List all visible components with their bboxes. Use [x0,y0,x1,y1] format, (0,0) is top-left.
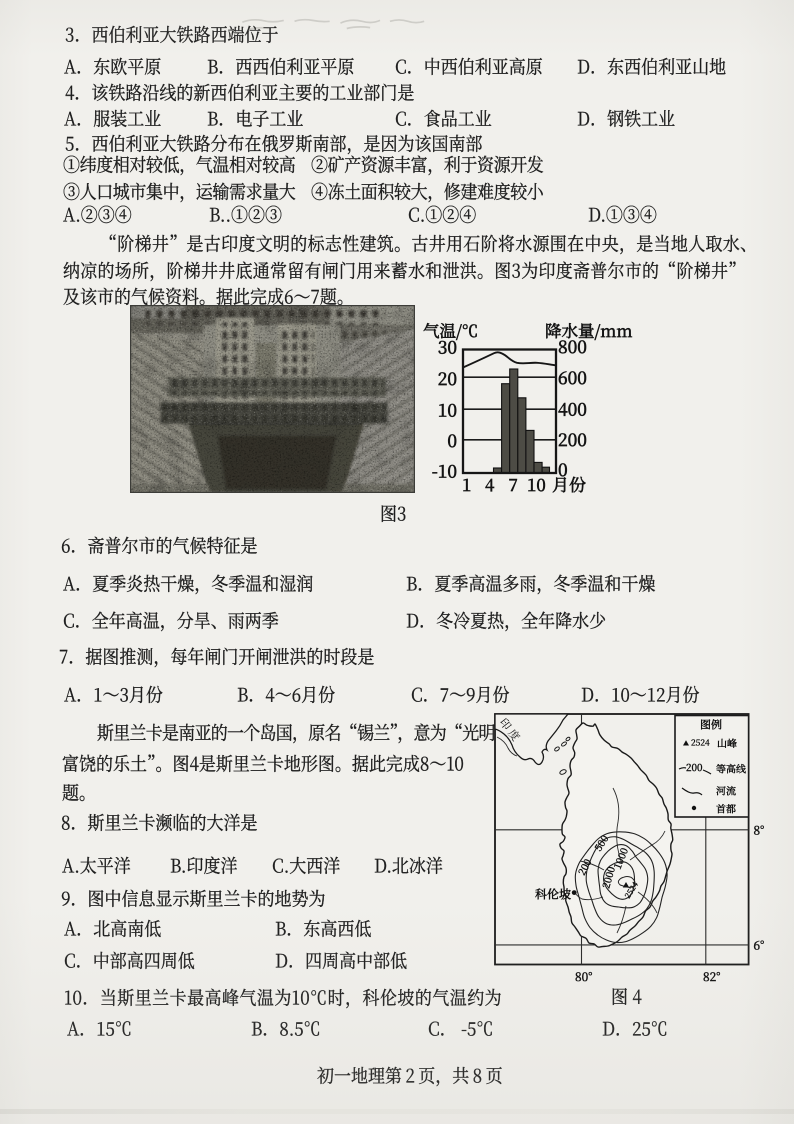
svg-text:10: 10 [527,471,546,496]
svg-text:82°: 82° [703,968,720,985]
svg-text:20: 20 [438,366,458,391]
svg-text:图例: 图例 [700,717,722,733]
svg-text:等高线: 等高线 [716,761,747,776]
svg-text:8°: 8° [754,822,765,839]
svg-text:-10: -10 [432,459,458,484]
svg-text:河流: 河流 [716,783,736,798]
svg-text:600: 600 [558,365,587,390]
svg-text:首都: 首都 [716,801,736,816]
svg-text:科伦坡: 科伦坡 [534,886,572,903]
svg-text:1: 1 [462,471,471,496]
svg-text:山峰: 山峰 [717,735,737,750]
svg-text:6°: 6° [754,937,765,954]
svg-text:0: 0 [447,428,457,453]
svg-text:800: 800 [558,334,587,359]
svg-text:7: 7 [509,471,518,496]
svg-text:400: 400 [558,397,587,422]
svg-text:200: 200 [686,759,703,774]
svg-text:10: 10 [438,398,458,423]
svg-text:2524: 2524 [691,737,710,749]
svg-text:80°: 80° [575,968,592,985]
svg-text:30: 30 [438,334,458,359]
svg-text:4: 4 [485,471,495,496]
svg-text:200: 200 [558,427,587,452]
svg-text:月份: 月份 [552,471,586,496]
